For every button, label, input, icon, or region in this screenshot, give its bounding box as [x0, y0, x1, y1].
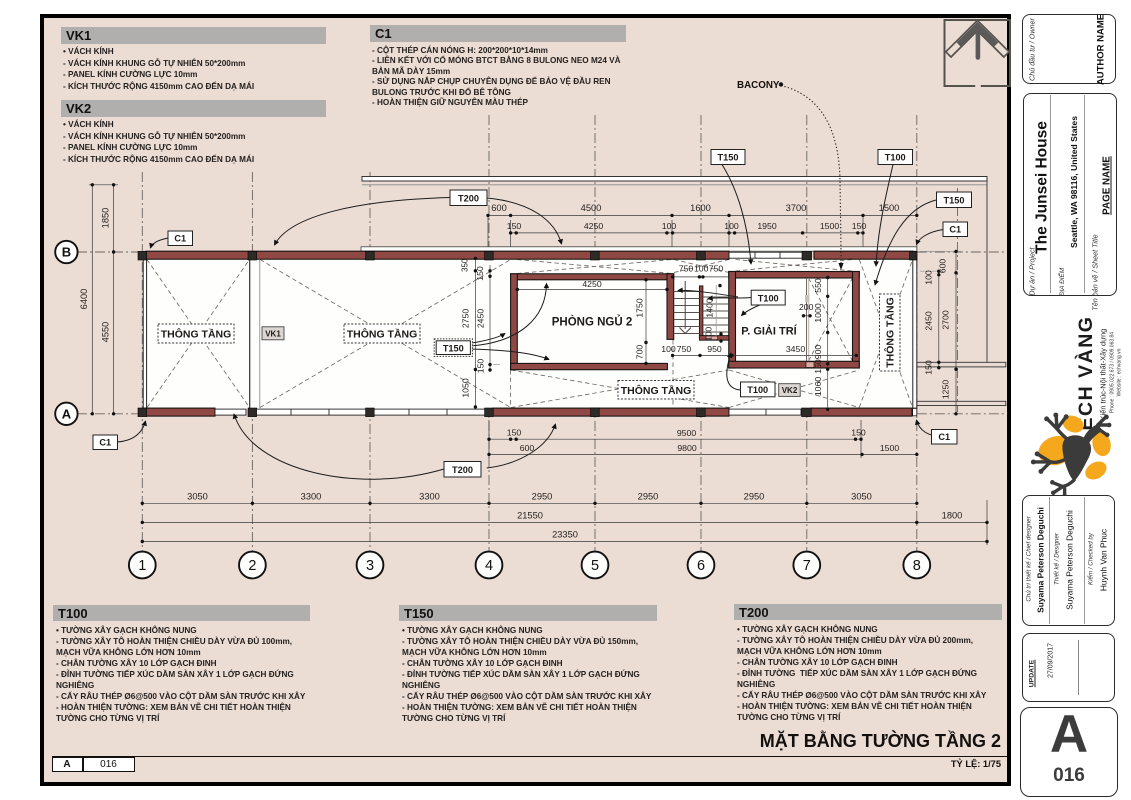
svg-text:900: 900 [813, 345, 823, 360]
svg-text:3050: 3050 [187, 492, 208, 502]
svg-text:600: 600 [520, 443, 535, 453]
svg-text:9500: 9500 [677, 428, 696, 438]
svg-text:600: 600 [491, 203, 507, 213]
svg-text:200: 200 [799, 302, 814, 312]
svg-text:5: 5 [591, 558, 599, 574]
svg-text:C1: C1 [99, 438, 111, 448]
svg-text:C1: C1 [949, 225, 961, 235]
svg-text:150: 150 [924, 360, 934, 375]
svg-text:3300: 3300 [301, 492, 322, 502]
svg-text:1060: 1060 [813, 377, 823, 396]
svg-text:150: 150 [507, 221, 522, 231]
svg-text:THÔNG TẦNG: THÔNG TẦNG [161, 328, 232, 341]
svg-text:4550: 4550 [101, 322, 111, 343]
svg-text:P. GIẢI TRÍ: P. GIẢI TRÍ [741, 325, 797, 338]
svg-text:950: 950 [707, 344, 722, 354]
svg-text:700: 700 [635, 345, 645, 360]
svg-text:THÔNG TẦNG: THÔNG TẦNG [621, 384, 692, 397]
svg-text:1500: 1500 [880, 443, 899, 453]
svg-text:THÔNG TẦNG: THÔNG TẦNG [884, 297, 897, 368]
svg-text:100: 100 [661, 344, 676, 354]
svg-text:6400: 6400 [79, 289, 89, 310]
svg-text:600: 600 [938, 259, 948, 274]
svg-text:2450: 2450 [924, 311, 934, 330]
svg-text:750: 750 [677, 344, 692, 354]
svg-text:VK2: VK2 [782, 386, 798, 395]
svg-text:BACONY: BACONY [737, 80, 780, 91]
svg-text:T200: T200 [458, 194, 479, 204]
svg-text:THÔNG TẦNG: THÔNG TẦNG [347, 328, 418, 341]
svg-text:150: 150 [476, 359, 486, 374]
svg-text:2950: 2950 [532, 492, 553, 502]
svg-text:2750: 2750 [461, 309, 471, 328]
svg-text:550: 550 [813, 278, 823, 293]
svg-text:4: 4 [485, 558, 493, 574]
svg-text:2450: 2450 [476, 309, 486, 328]
svg-text:1500: 1500 [879, 203, 900, 213]
svg-text:21550: 21550 [517, 511, 543, 521]
svg-text:1000: 1000 [813, 303, 823, 322]
svg-text:1750: 1750 [635, 298, 645, 317]
svg-text:8: 8 [913, 558, 921, 574]
svg-text:1500: 1500 [820, 221, 839, 231]
svg-text:6: 6 [697, 558, 705, 574]
svg-text:1400: 1400 [705, 298, 715, 317]
svg-text:3450: 3450 [786, 344, 805, 354]
svg-text:T100: T100 [758, 293, 779, 303]
svg-text:1250: 1250 [941, 380, 951, 399]
svg-text:150: 150 [813, 359, 823, 374]
svg-text:T150: T150 [443, 344, 464, 354]
svg-text:100: 100 [724, 221, 739, 231]
svg-text:150: 150 [852, 221, 867, 231]
svg-text:C1: C1 [938, 432, 950, 442]
svg-text:1600: 1600 [690, 203, 711, 213]
svg-text:PHÒNG NGỦ 2: PHÒNG NGỦ 2 [552, 316, 633, 329]
svg-text:150: 150 [475, 266, 485, 281]
svg-text:150: 150 [507, 428, 522, 438]
svg-text:1950: 1950 [757, 221, 776, 231]
svg-text:2950: 2950 [638, 492, 659, 502]
svg-text:1050: 1050 [461, 378, 471, 397]
svg-text:100: 100 [924, 270, 934, 285]
svg-text:100: 100 [662, 221, 677, 231]
svg-text:4500: 4500 [581, 203, 602, 213]
svg-text:7: 7 [803, 558, 811, 574]
svg-text:A: A [62, 406, 72, 421]
svg-text:3050: 3050 [851, 492, 872, 502]
svg-text:9800: 9800 [677, 443, 696, 453]
svg-text:1800: 1800 [942, 511, 963, 521]
svg-text:100: 100 [704, 327, 714, 342]
svg-text:VK1: VK1 [265, 329, 281, 338]
svg-text:350: 350 [461, 258, 470, 272]
svg-text:150: 150 [851, 428, 866, 438]
svg-text:T100: T100 [747, 385, 768, 395]
svg-text:C1: C1 [174, 234, 186, 244]
svg-text:750: 750 [679, 263, 694, 273]
svg-text:B: B [62, 245, 71, 260]
svg-text:3700: 3700 [786, 203, 807, 213]
svg-text:2950: 2950 [744, 492, 765, 502]
svg-text:T150: T150 [944, 196, 965, 206]
svg-text:2: 2 [248, 558, 256, 574]
svg-text:4250: 4250 [584, 221, 603, 231]
svg-text:4250: 4250 [582, 279, 601, 289]
svg-text:3: 3 [366, 558, 374, 574]
svg-text:23350: 23350 [552, 530, 578, 540]
svg-text:T200: T200 [452, 465, 473, 475]
svg-text:3300: 3300 [419, 492, 440, 502]
svg-text:1850: 1850 [101, 208, 111, 229]
svg-text:750: 750 [709, 263, 724, 273]
svg-text:1: 1 [138, 558, 146, 574]
svg-text:T100: T100 [885, 153, 906, 163]
svg-text:2700: 2700 [941, 310, 951, 329]
svg-text:100: 100 [694, 263, 709, 273]
svg-text:T150: T150 [718, 153, 739, 163]
